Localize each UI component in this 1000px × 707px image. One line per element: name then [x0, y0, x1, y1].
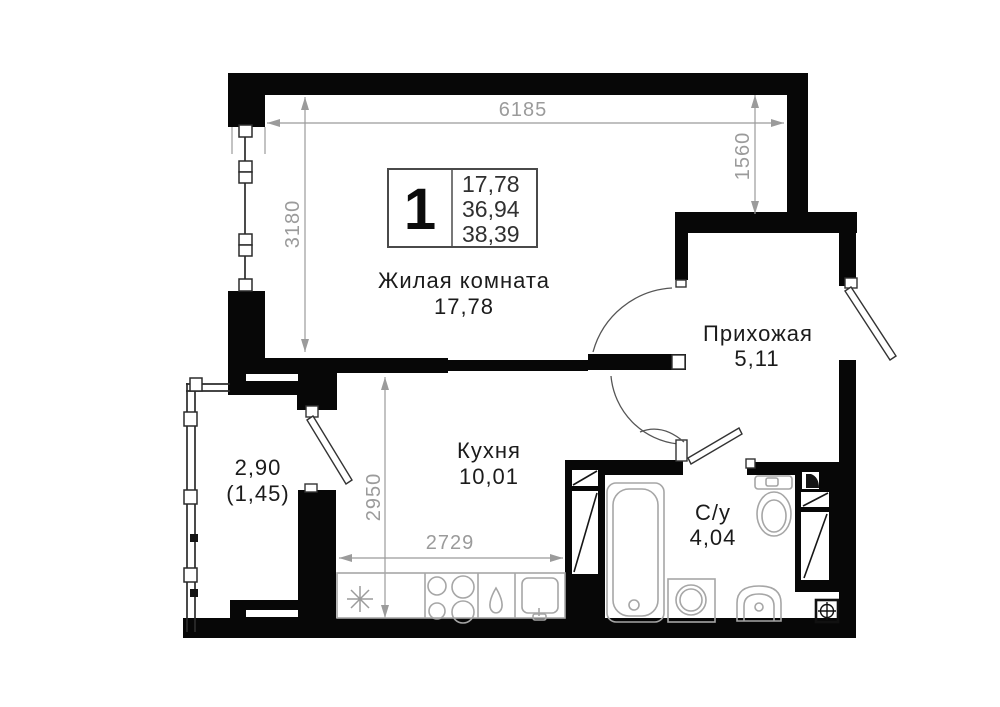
kitchen-fixtures — [337, 573, 565, 623]
boiler-drop-icon — [490, 588, 502, 613]
living-door-swing-arc — [593, 288, 672, 352]
wall-living-bottom-thin — [448, 360, 588, 371]
wall-living-right — [787, 73, 808, 215]
floor-plan-page: 6185 3180 1560 2950 2729 — [0, 0, 1000, 707]
wall-balcony-kitchen-lower — [298, 490, 336, 638]
room-area-balcony: (1,45) — [226, 481, 289, 506]
room-label-balcony: 2,90 — [235, 455, 282, 480]
wall-balcony-kitchen-upper — [297, 358, 337, 410]
room-label-living: Жилая комната — [378, 268, 550, 293]
wall-top — [228, 73, 808, 95]
window-mullion — [239, 172, 252, 183]
living-door-leaf — [588, 354, 686, 370]
legend-rooms-count: 1 — [404, 177, 436, 242]
glazing-mullion-dark — [190, 534, 198, 542]
kitchen-sink-icon — [522, 578, 558, 620]
dim-arrow — [267, 119, 280, 127]
wall-living-bottom-b — [337, 358, 448, 373]
room-area-kitchen: 10,01 — [459, 464, 519, 489]
glazing-mullion — [184, 412, 197, 426]
window-mullion — [239, 279, 252, 291]
legend-area-value: 17,78 — [462, 171, 520, 197]
wall-bathroom-top-left — [605, 460, 683, 475]
window-mullion — [239, 161, 252, 172]
dim-arrow — [381, 377, 389, 390]
wall-right-lower — [839, 360, 856, 638]
glazing-mullion — [190, 378, 202, 391]
dim-arrow — [339, 554, 352, 562]
window-mullion — [239, 245, 252, 256]
glazing-mullion — [184, 568, 197, 582]
wall-left-top — [228, 73, 265, 127]
balcony-door-leaf — [307, 416, 352, 484]
dim-arrow — [301, 339, 309, 352]
legend-area-value: 38,39 — [462, 221, 520, 247]
washing-machine-icon — [668, 579, 715, 622]
wall-hall-top — [675, 212, 857, 233]
entrance-door-leaf — [845, 287, 896, 360]
living-door-cap — [672, 355, 685, 369]
dim-2729-label: 2729 — [426, 532, 475, 554]
legend: 1 17,78 36,94 38,39 — [388, 169, 537, 247]
floor-plan-drawing: 6185 3180 1560 2950 2729 — [0, 0, 1000, 707]
room-area-hallway: 5,11 — [734, 346, 779, 371]
glazing-mullion-dark — [190, 589, 198, 597]
bathroom-door-leaf — [688, 428, 742, 464]
stove-icon — [428, 576, 474, 623]
room-label-bathroom: С/у — [695, 500, 731, 525]
dim-arrow — [301, 97, 309, 110]
kitchen-counter — [337, 573, 565, 618]
dim-arrow — [771, 119, 784, 127]
room-label-hallway: Прихожая — [703, 321, 813, 346]
room-area-living: 17,78 — [434, 294, 494, 319]
room-label-kitchen: Кухня — [457, 438, 521, 463]
dim-arrow — [381, 605, 389, 618]
bath-sink-icon — [737, 586, 781, 621]
window-mullion — [239, 234, 252, 245]
dim-1560-label: 1560 — [732, 132, 754, 181]
dim-arrow — [751, 95, 759, 108]
bathtub-icon — [607, 483, 664, 622]
fridge-asterisk-icon — [347, 586, 373, 612]
living-door-swing-arc — [611, 376, 678, 444]
dim-arrow — [550, 554, 563, 562]
window-slit-balcony-bottom — [246, 610, 298, 617]
bathroom-door-post — [746, 459, 755, 468]
dim-3180-label: 3180 — [282, 200, 304, 249]
doors — [305, 278, 896, 492]
dim-6185-label: 6185 — [499, 99, 548, 121]
glazing-mullion — [184, 490, 197, 504]
room-area-bathroom: 4,04 — [690, 525, 737, 550]
hall-wall-cap — [676, 280, 686, 287]
bathroom-door-post — [676, 440, 687, 461]
balcony-door-post — [305, 484, 317, 492]
dim-2950-label: 2950 — [363, 473, 385, 522]
window-mullion — [239, 125, 252, 137]
legend-area-value: 36,94 — [462, 196, 520, 222]
wall-hall-west — [675, 222, 688, 280]
balcony-door-post — [306, 406, 318, 417]
toilet-icon — [755, 476, 792, 536]
window-slit-living-balcony — [246, 374, 298, 381]
